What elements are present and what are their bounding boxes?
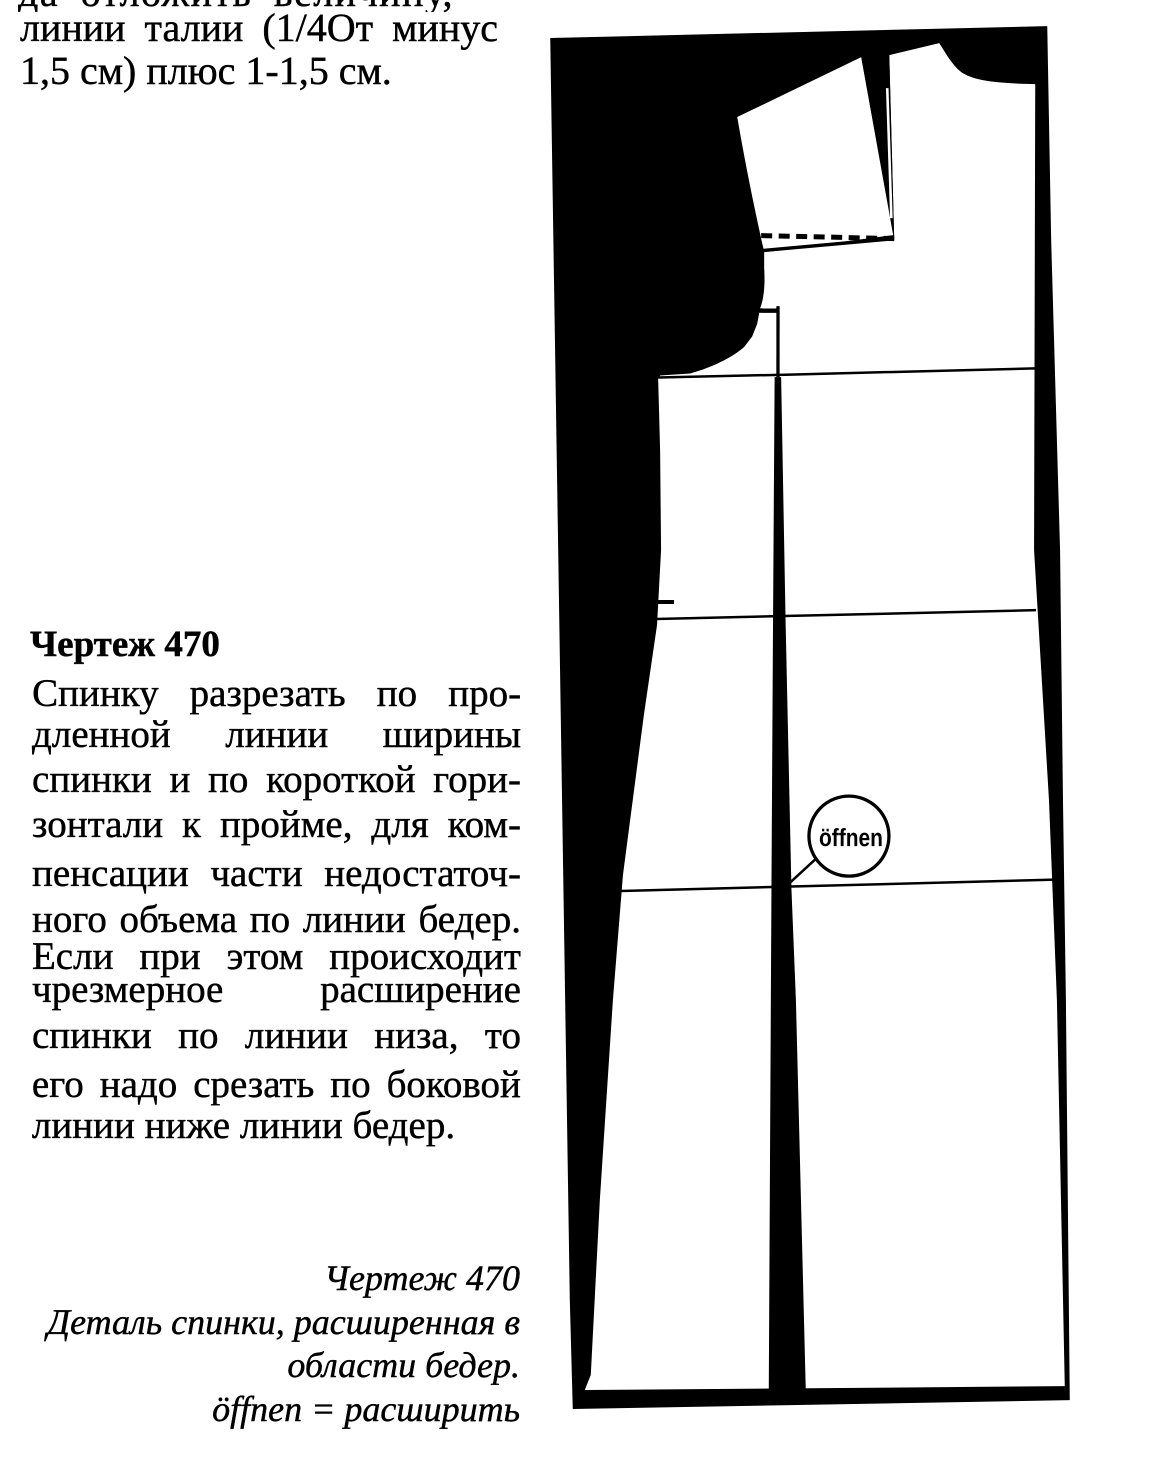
svg-text:öffnen: öffnen (819, 824, 883, 852)
